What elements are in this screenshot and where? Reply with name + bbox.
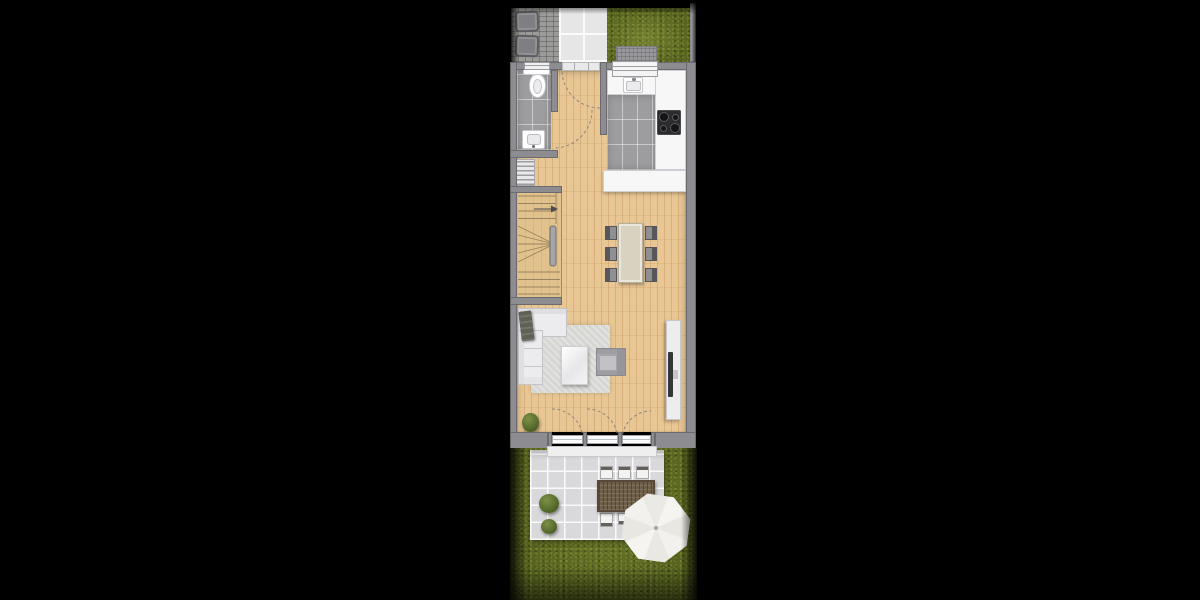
kitchen-window — [612, 61, 658, 77]
kitchen-wall-left — [600, 62, 607, 135]
bathroom-wall-right — [551, 70, 558, 112]
patio-door-panel — [552, 435, 583, 444]
patio-door-panel — [622, 435, 651, 444]
stair-handrail — [550, 226, 556, 266]
entrance-threshold — [562, 62, 600, 71]
bathroom-wall-bottom — [510, 150, 558, 158]
outdoor-chair — [618, 466, 631, 479]
terrace-bush — [541, 519, 557, 534]
patio-door-panel — [587, 435, 618, 444]
parasol-pole — [654, 526, 659, 531]
patio-threshold-step — [547, 446, 657, 457]
bathroom-window — [524, 62, 550, 70]
outdoor-chair — [600, 513, 613, 527]
floor-plan-strip — [510, 0, 700, 600]
stair-wall-bottom — [510, 297, 562, 305]
stair-wall-top — [510, 186, 562, 193]
bathroom-door-arc — [554, 110, 592, 148]
terrace-bush — [539, 494, 559, 513]
wall-right — [686, 62, 696, 452]
outdoor-chair — [636, 466, 649, 479]
wall-left — [510, 62, 517, 452]
floor-plan-canvas — [0, 0, 1200, 600]
outdoor-chair — [600, 466, 613, 479]
entrance-door-arc — [562, 70, 600, 108]
